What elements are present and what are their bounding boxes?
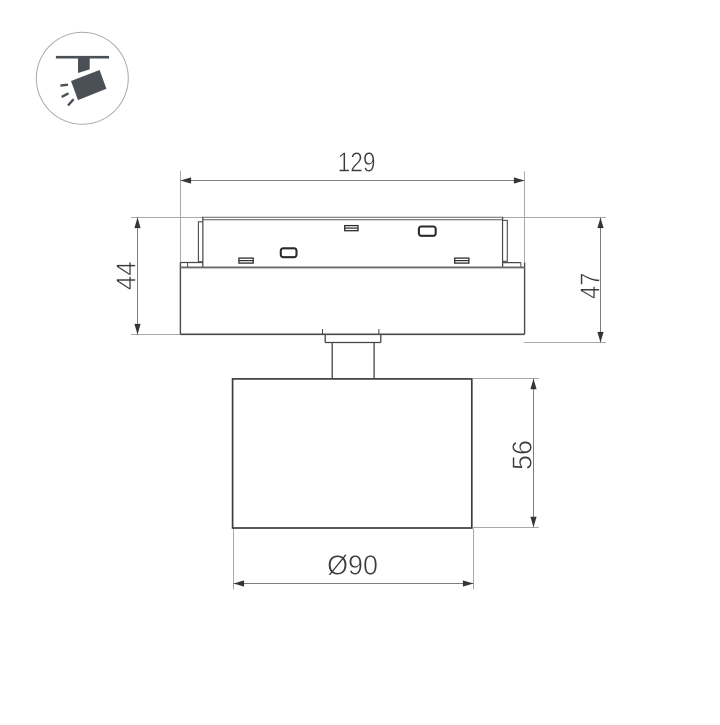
svg-text:Ø90: Ø90 — [327, 549, 378, 581]
svg-text:44: 44 — [110, 261, 141, 290]
svg-text:129: 129 — [338, 147, 376, 178]
svg-text:47: 47 — [575, 273, 605, 299]
svg-text:56: 56 — [506, 440, 538, 470]
